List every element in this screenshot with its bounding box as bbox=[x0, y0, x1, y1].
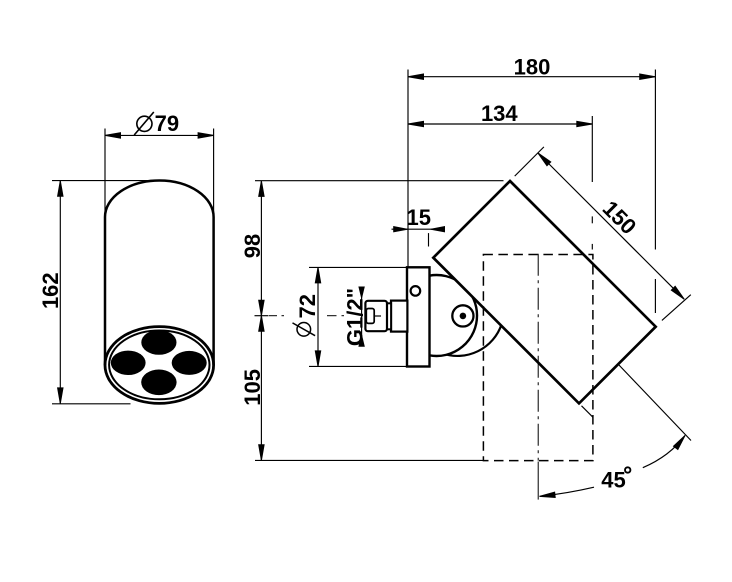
svg-text:79: 79 bbox=[155, 111, 179, 136]
svg-text:98: 98 bbox=[240, 234, 265, 258]
svg-text:105: 105 bbox=[240, 369, 265, 406]
svg-text:134: 134 bbox=[481, 101, 518, 126]
svg-text:150: 150 bbox=[598, 196, 642, 240]
svg-text:15: 15 bbox=[406, 205, 430, 230]
svg-text:G1/2": G1/2" bbox=[343, 288, 368, 346]
svg-text:45: 45 bbox=[601, 467, 625, 492]
svg-text:162: 162 bbox=[38, 272, 63, 309]
svg-text:72: 72 bbox=[295, 294, 320, 318]
svg-text:180: 180 bbox=[514, 55, 551, 80]
